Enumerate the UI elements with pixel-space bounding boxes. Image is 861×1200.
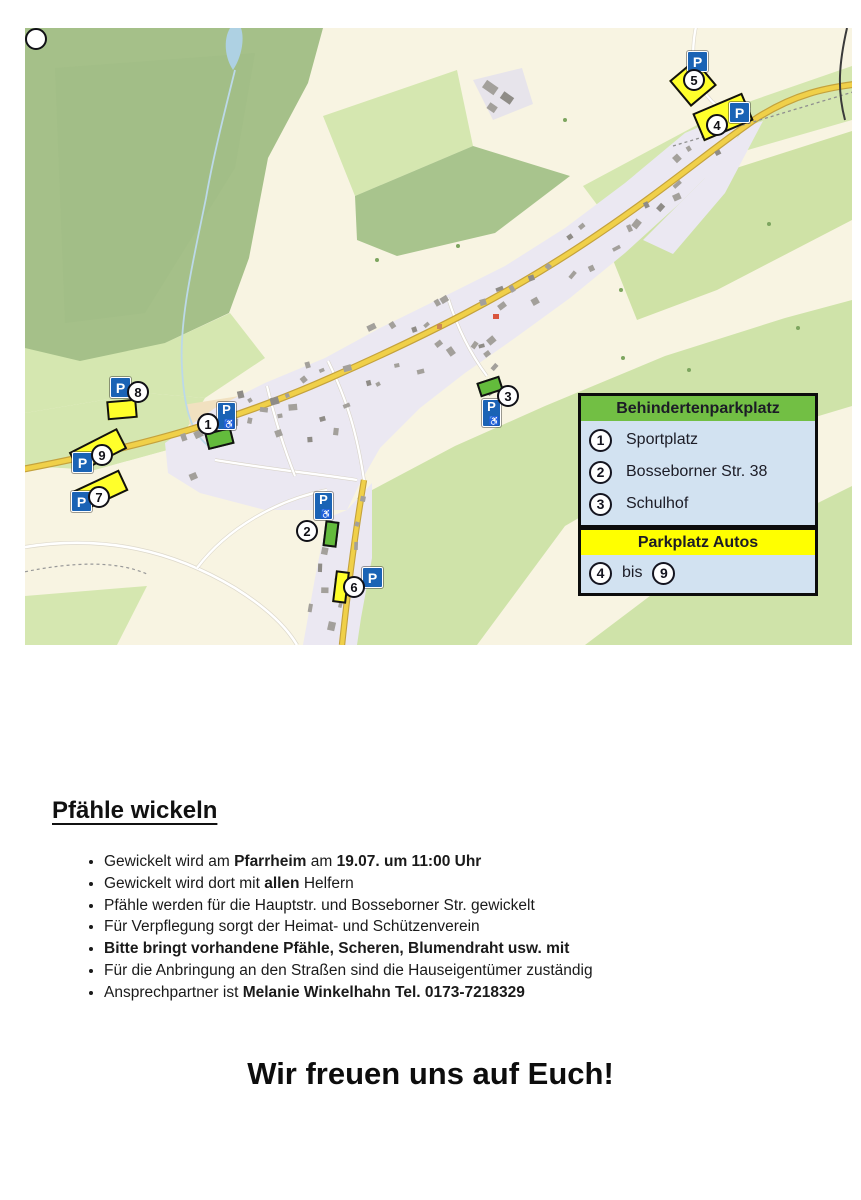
disabled-parking-sign-icon-3: P♿	[482, 399, 501, 427]
disabled-parking-sign-icon-2: P♿	[314, 492, 333, 520]
bullet-list: Gewickelt wird am Pfarrheim am 19.07. um…	[52, 851, 744, 1004]
marker-number-5-badge: 5	[683, 69, 705, 91]
disabled-parking-sign-icon-1: P♿	[217, 402, 236, 430]
legend-cars-title: Parkplatz Autos	[581, 530, 815, 555]
bullet-item: Gewickelt wird dort mit allen Helfern	[104, 873, 744, 895]
marker-number-2-badge: 2	[296, 520, 318, 542]
legend-disabled-items: 1Sportplatz2Bosseborner Str. 383Schulhof	[581, 421, 815, 525]
legend-disabled-parking: Behindertenparkplatz 1Sportplatz2Bossebo…	[578, 393, 818, 528]
closing-line: Wir freuen uns auf Euch!	[0, 1056, 861, 1092]
marker-number-5	[25, 28, 47, 50]
marker-number-7-badge: 7	[88, 486, 110, 508]
bullet-item: Ansprechpartner ist Melanie Winkelhahn T…	[104, 982, 744, 1004]
legend-label: Sportplatz	[626, 431, 698, 449]
legend-circle-1: 1	[589, 429, 612, 452]
marker-number-1-badge: 1	[197, 413, 219, 435]
bullet-item: Pfähle werden für die Hauptstr. und Boss…	[104, 895, 744, 917]
marker-number-3-badge: 3	[497, 385, 519, 407]
legend-item-1: 1Sportplatz	[589, 424, 807, 456]
legend-circle-2: 2	[589, 461, 612, 484]
legend-circle-3: 3	[589, 493, 612, 516]
page-title: Pfähle wickeln	[52, 797, 217, 825]
legend-range-separator: bis	[622, 564, 642, 582]
bullet-item: Für Verpflegung sorgt der Heimat- und Sc…	[104, 916, 744, 938]
marker-number-6-badge: 6	[343, 576, 365, 598]
wheelchair-icon: ♿	[489, 417, 500, 426]
parking-sign-icon-6: P	[362, 567, 383, 588]
parking-sign-icon-4: P	[729, 102, 750, 123]
p-sign-letter: P	[693, 54, 702, 70]
legend-disabled-title: Behindertenparkplatz	[581, 396, 815, 421]
legend-item-3: 3Schulhof	[589, 488, 807, 520]
legend-cars-range: 4 bis 9	[589, 558, 807, 588]
legend-item-2: 2Bosseborner Str. 38	[589, 456, 807, 488]
village-map: P 5 P 4 P 8 P 9 P 7 P♿ 1 3 P♿ P♿ 2 6 P	[25, 28, 852, 645]
marker-number-4-badge: 4	[706, 114, 728, 136]
parking-sign-icon-9: P	[72, 452, 93, 473]
bullet-item: Für die Anbringung an den Straßen sind d…	[104, 960, 744, 982]
document-page: P 5 P 4 P 8 P 9 P 7 P♿ 1 3 P♿ P♿ 2 6 P	[0, 0, 861, 1200]
legend-car-parking: Parkplatz Autos 4 bis 9	[578, 527, 818, 596]
marker-number-9-badge: 9	[91, 444, 113, 466]
legend-label: Bosseborner Str. 38	[626, 463, 767, 481]
wheelchair-icon: ♿	[224, 420, 235, 429]
legend-circle-from: 4	[589, 562, 612, 585]
legend-label: Schulhof	[626, 495, 688, 513]
marker-number-8-badge: 8	[127, 381, 149, 403]
wheelchair-icon: ♿	[321, 510, 332, 519]
bullet-item: Bitte bringt vorhandene Pfähle, Scheren,…	[104, 938, 744, 960]
bullet-item: Gewickelt wird am Pfarrheim am 19.07. um…	[104, 851, 744, 873]
legend-circle-to: 9	[652, 562, 675, 585]
